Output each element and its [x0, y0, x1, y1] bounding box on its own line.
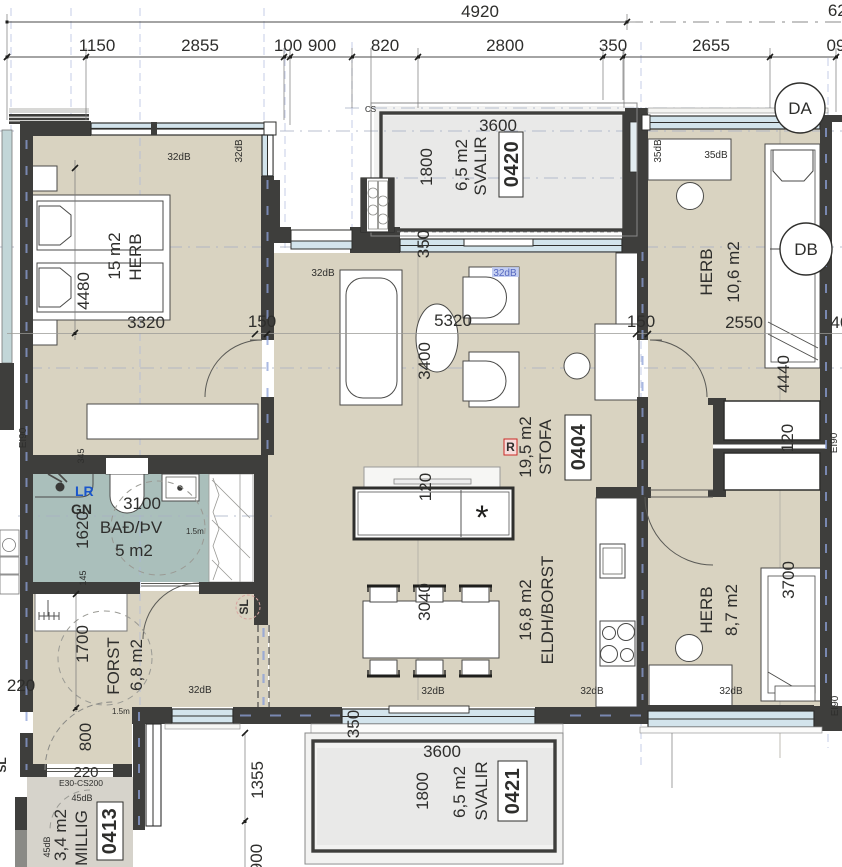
svg-text:350: 350 — [414, 230, 433, 258]
svg-text:900: 900 — [308, 36, 336, 55]
svg-text:1.5m: 1.5m — [112, 707, 130, 716]
svg-text:3600: 3600 — [423, 742, 461, 761]
svg-text:DA: DA — [788, 99, 812, 118]
svg-text:0404: 0404 — [568, 423, 590, 470]
svg-text:45dB: 45dB — [71, 793, 92, 803]
svg-text:2655: 2655 — [692, 36, 730, 55]
svg-text:220: 220 — [7, 676, 35, 695]
svg-text:09: 09 — [827, 36, 842, 55]
svg-text:3040: 3040 — [415, 583, 434, 621]
svg-text:HERB: HERB — [697, 586, 716, 633]
svg-text:2800: 2800 — [486, 36, 524, 55]
svg-text:5 m2: 5 m2 — [115, 541, 153, 560]
svg-text:150: 150 — [248, 312, 276, 331]
svg-text:1.5m: 1.5m — [186, 527, 204, 536]
svg-text:120: 120 — [778, 424, 797, 452]
svg-text:6,8 m2: 6,8 m2 — [127, 639, 146, 691]
svg-text:32dB: 32dB — [234, 139, 245, 163]
svg-text:3100: 3100 — [123, 494, 161, 513]
svg-text:GN: GN — [71, 501, 92, 517]
svg-text:120: 120 — [416, 473, 435, 501]
svg-text:3320: 3320 — [127, 313, 165, 332]
svg-text:FORST: FORST — [104, 637, 123, 695]
svg-text:MILLIG: MILLIG — [72, 810, 91, 866]
svg-text:R: R — [506, 440, 515, 454]
svg-text:350: 350 — [344, 710, 363, 738]
svg-text:1800: 1800 — [417, 148, 436, 186]
svg-text:15 m2: 15 m2 — [105, 232, 124, 279]
svg-text:0420: 0420 — [501, 141, 523, 188]
svg-text:0413: 0413 — [99, 808, 121, 855]
svg-text:150: 150 — [627, 312, 655, 331]
svg-text:35dB: 35dB — [653, 139, 664, 163]
svg-text:0421: 0421 — [502, 768, 524, 815]
svg-text:SVALIR: SVALIR — [471, 136, 490, 195]
svg-text:350: 350 — [599, 36, 627, 55]
svg-text:3400: 3400 — [415, 342, 434, 380]
svg-text:4440: 4440 — [774, 355, 793, 393]
svg-text:CS: CS — [365, 105, 376, 114]
svg-text:3,4 m2: 3,4 m2 — [51, 809, 70, 861]
svg-text:40: 40 — [831, 313, 842, 332]
svg-text:32dB: 32dB — [493, 268, 517, 279]
svg-text:32dB: 32dB — [421, 686, 445, 697]
svg-text:STOFA: STOFA — [536, 419, 555, 475]
svg-text:16,8 m2: 16,8 m2 — [516, 579, 535, 640]
svg-text:LR: LR — [75, 483, 94, 499]
svg-text:BAÐ/ÞV: BAÐ/ÞV — [100, 518, 163, 537]
svg-text:ELDH/BORST: ELDH/BORST — [538, 556, 557, 665]
svg-text:EI90: EI90 — [830, 695, 841, 716]
svg-text:5320: 5320 — [434, 311, 472, 330]
svg-text:2550: 2550 — [725, 313, 763, 332]
svg-text:HERB: HERB — [126, 233, 145, 280]
svg-text:32dB: 32dB — [580, 686, 604, 697]
svg-text:1355: 1355 — [248, 761, 267, 799]
svg-text:4480: 4480 — [74, 272, 93, 310]
svg-text:345: 345 — [76, 448, 86, 463]
svg-text:32dB: 32dB — [188, 685, 212, 696]
svg-text:6,5 m2: 6,5 m2 — [450, 766, 469, 818]
svg-text:EI90: EI90 — [18, 427, 29, 448]
svg-text:DB: DB — [794, 240, 818, 259]
svg-text:145: 145 — [78, 570, 88, 585]
svg-text:45dB: 45dB — [42, 836, 52, 857]
svg-text:32dB: 32dB — [167, 152, 191, 163]
svg-text:32dB: 32dB — [311, 268, 335, 279]
svg-text:1150: 1150 — [79, 36, 116, 55]
svg-text:SL: SL — [0, 757, 9, 772]
svg-text:1700: 1700 — [73, 625, 92, 663]
svg-text:EI90: EI90 — [829, 432, 840, 453]
svg-text:4920: 4920 — [461, 2, 499, 21]
svg-text:100: 100 — [274, 36, 302, 55]
svg-text:35dB: 35dB — [704, 150, 728, 161]
svg-text:6,5 m2: 6,5 m2 — [452, 139, 471, 191]
svg-text:900: 900 — [247, 844, 266, 867]
svg-text:620: 620 — [828, 1, 842, 20]
svg-text:10,6 m2: 10,6 m2 — [724, 241, 743, 302]
svg-text:SVALIR: SVALIR — [472, 761, 491, 820]
svg-text:820: 820 — [371, 36, 399, 55]
svg-text:3700: 3700 — [779, 561, 798, 599]
svg-text:HERB: HERB — [697, 248, 716, 295]
svg-text:1800: 1800 — [413, 772, 432, 810]
svg-text:8,7 m2: 8,7 m2 — [722, 584, 741, 636]
svg-text:*: * — [475, 499, 488, 537]
svg-text:2855: 2855 — [181, 36, 219, 55]
svg-text:32dB: 32dB — [719, 686, 743, 697]
svg-text:800: 800 — [76, 723, 95, 751]
svg-text:SL: SL — [237, 599, 251, 614]
svg-text:19,5 m2: 19,5 m2 — [516, 416, 535, 477]
svg-text:E30-CS200: E30-CS200 — [59, 778, 103, 788]
